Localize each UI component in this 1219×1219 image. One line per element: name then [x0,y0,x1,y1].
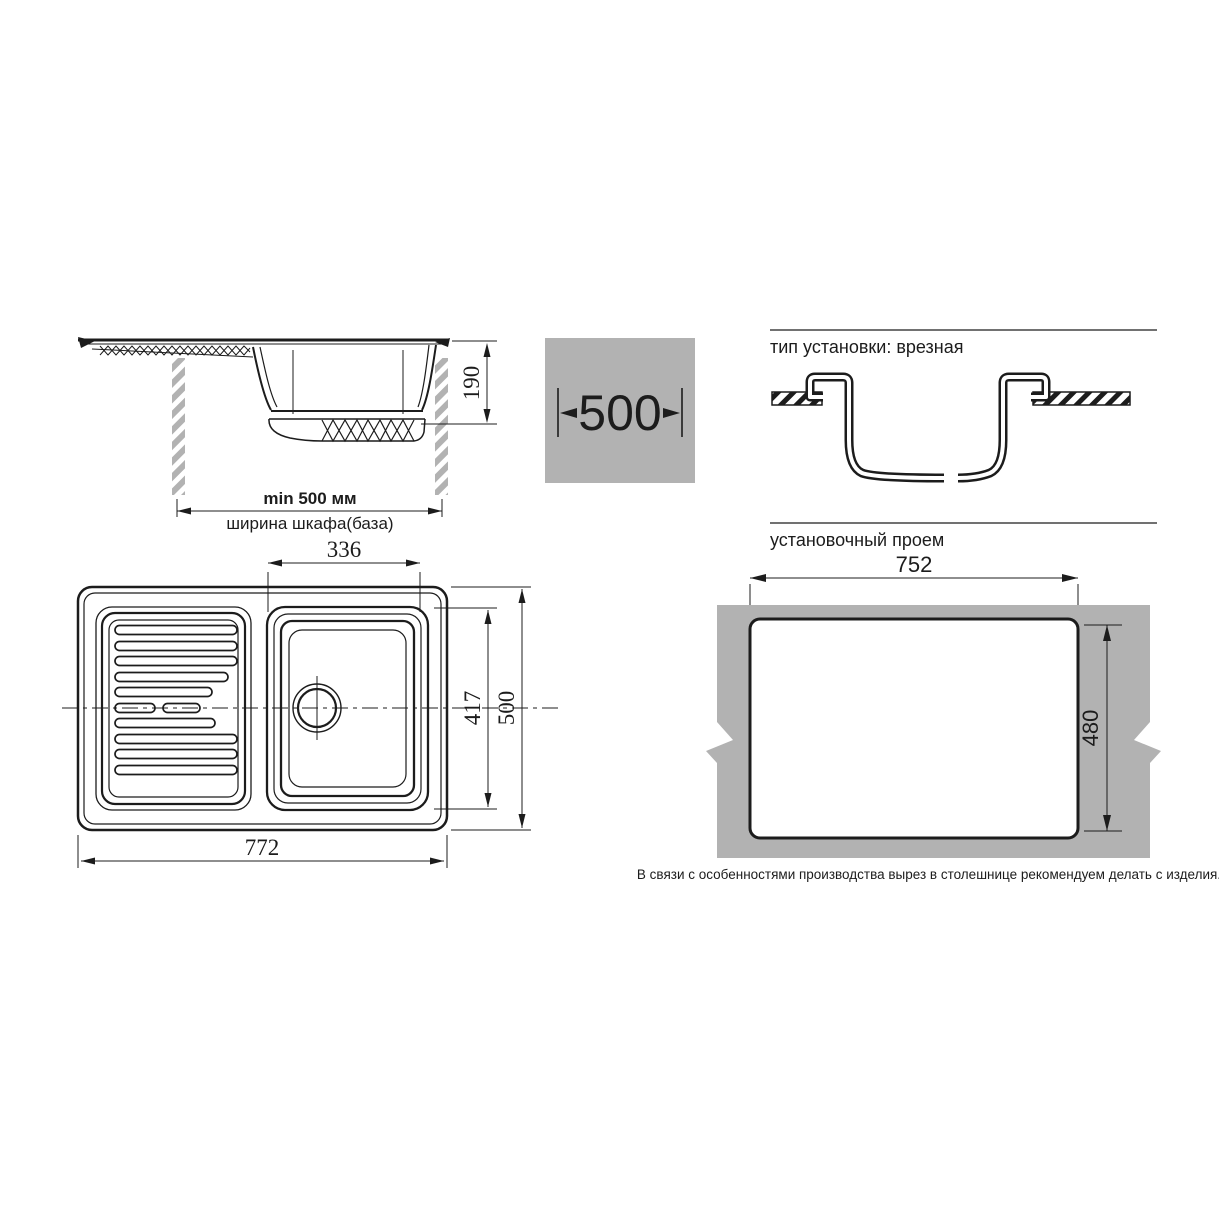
sink-technical-drawing-page: 190 min 500 мм ширина шкафа(база) 500 ти… [0,0,1219,1219]
cabinet-width-label: ширина шкафа(база) [226,514,393,533]
bowl-section [253,345,436,441]
technical-drawing: 190 min 500 мм ширина шкафа(база) 500 ти… [0,0,1219,1219]
side-depth-dim-label: 190 [459,366,484,401]
cutout-section: установочный проем 752 480 В связи с осо… [637,523,1219,882]
cabinet-wall-right [435,358,448,495]
overall-width-dim-label: 772 [245,835,280,860]
overall-depth-dim-label: 500 [494,691,519,726]
cabinet-min-width-label: min 500 мм [263,489,356,508]
drainboard-hatch [92,346,253,357]
side-view: 190 min 500 мм ширина шкафа(база) [78,337,497,533]
dim-336: 336 [268,537,420,612]
width-badge: 500 [545,338,695,483]
dim-752: 752 [750,552,1078,612]
cutout-width-dim-label: 752 [896,552,933,577]
dim-cabinet-width: min 500 мм ширина шкафа(база) [177,489,442,533]
cutout-heading: установочный проем [770,530,944,550]
production-note: В связи с особенностями производства выр… [637,867,1219,882]
cutout-height-dim-label: 480 [1078,710,1103,747]
bowl-foot-hatch [322,420,414,441]
dim-772: 772 [78,835,447,868]
drainboard-ribs [115,626,237,775]
bowl-width-dim-label: 336 [327,537,362,562]
install-type-heading: тип установки: врезная [770,337,963,357]
cutout-opening [750,619,1078,838]
width-badge-value: 500 [578,385,661,441]
cabinet-wall-left [172,358,185,495]
sink-profile-cross-section [810,377,1046,478]
bowl-depth-dim-label: 417 [460,691,485,726]
top-view: 336 417 500 772 [62,537,560,868]
dim-190: 190 [421,341,497,424]
install-type-section: тип установки: врезная [770,330,1157,478]
